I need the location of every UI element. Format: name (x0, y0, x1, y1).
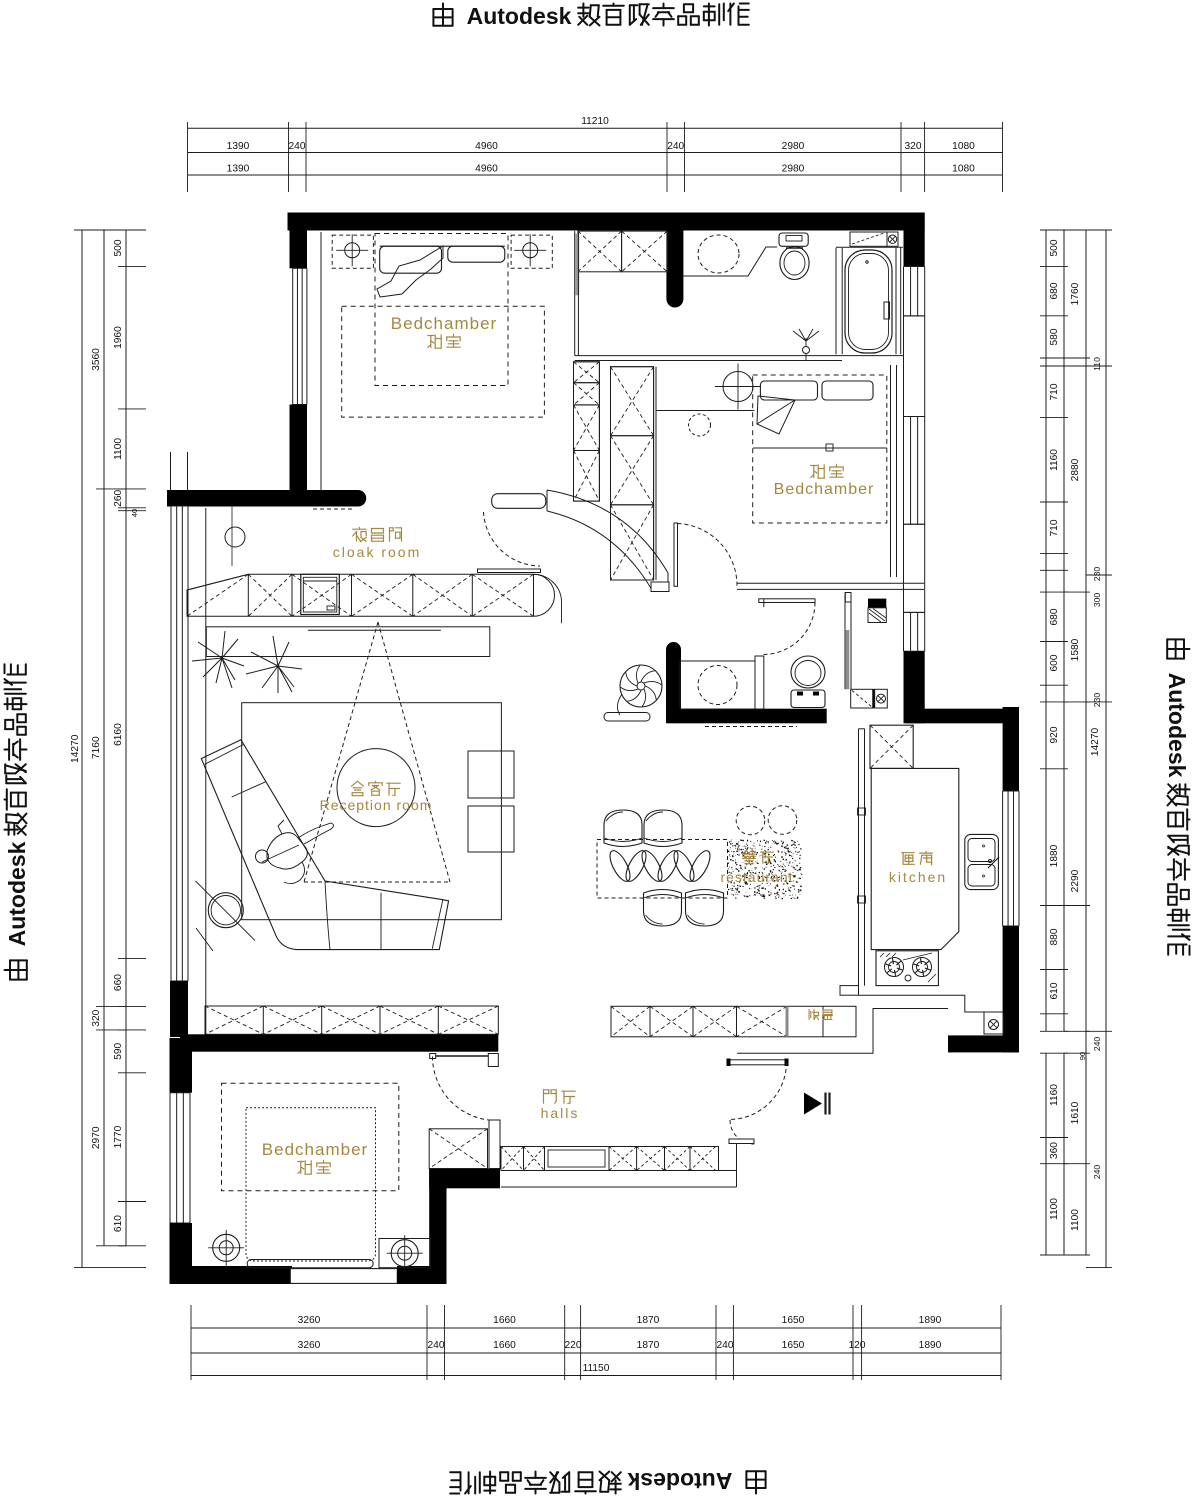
svg-text:920: 920 (1049, 726, 1060, 743)
svg-text:1870: 1870 (637, 1315, 660, 1326)
svg-text:Bedchamber: Bedchamber (391, 314, 497, 333)
svg-text:1390: 1390 (227, 141, 250, 152)
svg-text:240: 240 (428, 1340, 445, 1351)
svg-text:3260: 3260 (298, 1340, 321, 1351)
svg-text:90: 90 (1078, 1052, 1087, 1060)
svg-text:14270: 14270 (1090, 728, 1101, 757)
svg-text:2980: 2980 (782, 164, 805, 175)
svg-text:7160: 7160 (91, 736, 102, 759)
svg-text:Reception room: Reception room (320, 797, 433, 813)
svg-text:710: 710 (1049, 383, 1060, 400)
svg-text:240: 240 (289, 141, 306, 152)
svg-text:880: 880 (1049, 928, 1060, 945)
svg-text:Autodesk: Autodesk (4, 841, 30, 946)
svg-text:Autodesk: Autodesk (1164, 673, 1190, 778)
svg-text:710: 710 (1049, 519, 1060, 536)
svg-text:4960: 4960 (475, 141, 498, 152)
svg-text:1080: 1080 (952, 141, 975, 152)
svg-text:Bedchamber: Bedchamber (262, 1140, 368, 1159)
svg-text:3560: 3560 (91, 348, 102, 371)
svg-text:Autodesk: Autodesk (627, 1468, 732, 1494)
svg-text:680: 680 (1049, 608, 1060, 625)
svg-text:6160: 6160 (113, 723, 124, 746)
svg-text:kitchen: kitchen (889, 869, 947, 885)
svg-text:1870: 1870 (637, 1340, 660, 1351)
svg-text:2970: 2970 (91, 1126, 102, 1149)
svg-text:120: 120 (849, 1340, 866, 1351)
svg-text:660: 660 (113, 974, 124, 991)
svg-text:cloak room: cloak room (333, 544, 421, 560)
svg-text:2290: 2290 (1070, 869, 1081, 892)
svg-text:1660: 1660 (493, 1315, 516, 1326)
svg-text:590: 590 (113, 1042, 124, 1059)
svg-text:14270: 14270 (70, 734, 81, 763)
svg-text:1880: 1880 (1049, 844, 1060, 867)
svg-text:1770: 1770 (113, 1125, 124, 1148)
svg-text:110: 110 (1092, 357, 1102, 371)
svg-text:1650: 1650 (782, 1340, 805, 1351)
svg-text:600: 600 (1049, 654, 1060, 671)
svg-text:1650: 1650 (782, 1315, 805, 1326)
svg-text:1580: 1580 (1070, 638, 1081, 661)
svg-text:1080: 1080 (952, 164, 975, 175)
svg-text:1890: 1890 (919, 1340, 942, 1351)
svg-text:1100: 1100 (1049, 1198, 1060, 1220)
svg-text:40: 40 (130, 509, 139, 517)
svg-text:240: 240 (667, 141, 684, 152)
svg-text:restaurant: restaurant (720, 869, 793, 885)
svg-text:260: 260 (113, 489, 124, 506)
svg-text:500: 500 (113, 239, 124, 256)
svg-text:220: 220 (565, 1340, 582, 1351)
svg-text:610: 610 (113, 1215, 124, 1232)
svg-text:300: 300 (1092, 593, 1102, 608)
svg-text:240: 240 (1092, 1165, 1102, 1180)
svg-text:610: 610 (1049, 982, 1060, 999)
svg-text:1610: 1610 (1070, 1101, 1081, 1124)
svg-text:320: 320 (91, 1009, 102, 1026)
svg-text:2880: 2880 (1070, 458, 1081, 481)
svg-text:230: 230 (1092, 567, 1102, 582)
svg-text:240: 240 (1092, 1037, 1102, 1052)
svg-text:1890: 1890 (919, 1315, 942, 1326)
svg-text:1960: 1960 (113, 326, 124, 349)
svg-text:3260: 3260 (298, 1315, 321, 1326)
svg-text:500: 500 (1049, 239, 1060, 256)
svg-text:halls: halls (541, 1105, 580, 1121)
svg-text:1160: 1160 (1049, 449, 1060, 471)
svg-text:11150: 11150 (583, 1363, 610, 1374)
svg-text:4960: 4960 (475, 164, 498, 175)
svg-text:240: 240 (717, 1340, 734, 1351)
svg-text:1100: 1100 (1070, 1209, 1081, 1231)
svg-text:Bedchamber: Bedchamber (774, 481, 875, 498)
svg-text:680: 680 (1049, 282, 1060, 299)
svg-text:1390: 1390 (227, 164, 250, 175)
svg-text:11210: 11210 (581, 116, 609, 127)
svg-text:Autodesk: Autodesk (467, 3, 572, 29)
svg-text:580: 580 (1049, 328, 1060, 345)
svg-text:360: 360 (1049, 1142, 1060, 1159)
svg-text:230: 230 (1092, 693, 1102, 708)
svg-text:1100: 1100 (113, 438, 124, 460)
svg-text:2980: 2980 (782, 141, 805, 152)
svg-text:1660: 1660 (493, 1340, 516, 1351)
svg-text:1160: 1160 (1049, 1084, 1060, 1106)
svg-text:320: 320 (905, 141, 922, 152)
svg-text:1760: 1760 (1070, 282, 1081, 305)
